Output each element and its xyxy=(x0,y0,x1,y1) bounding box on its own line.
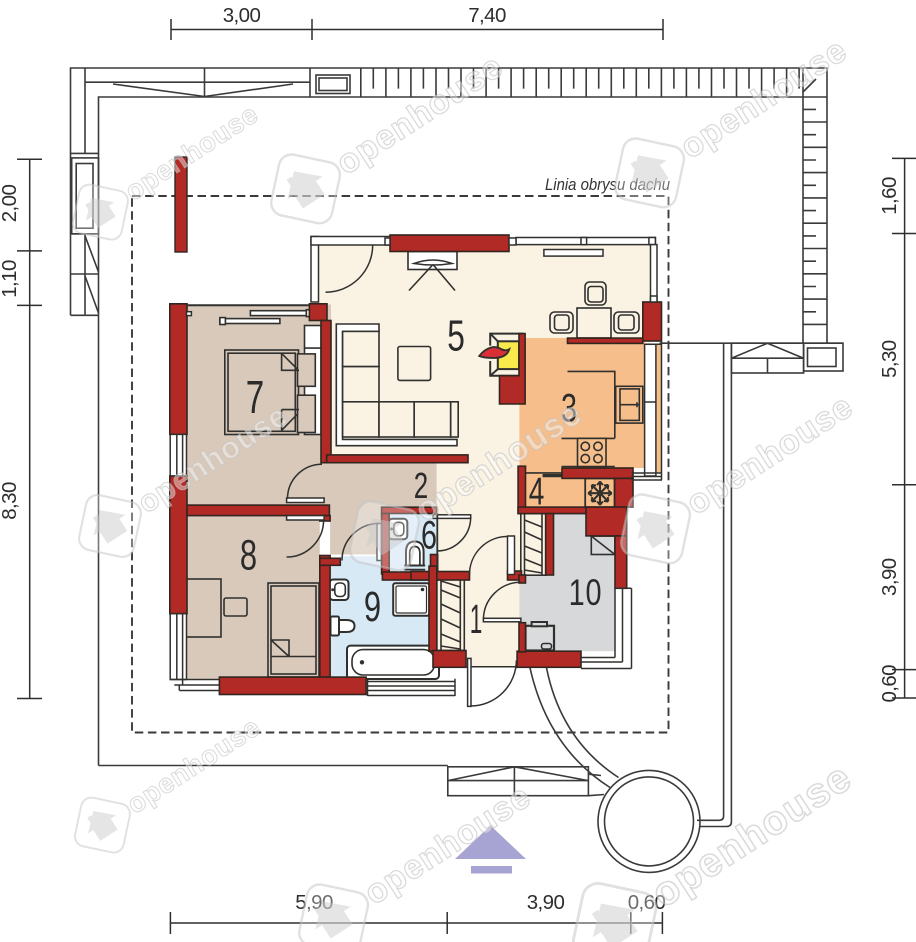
svg-text:8,30: 8,30 xyxy=(0,482,21,520)
svg-text:3,90: 3,90 xyxy=(527,891,565,914)
svg-text:10: 10 xyxy=(569,573,603,614)
svg-text:1: 1 xyxy=(470,597,483,643)
svg-text:8: 8 xyxy=(240,530,257,578)
svg-text:1,10: 1,10 xyxy=(0,260,21,298)
svg-text:5,30: 5,30 xyxy=(878,340,901,378)
svg-text:3,00: 3,00 xyxy=(223,4,261,27)
svg-text:0,60: 0,60 xyxy=(878,665,901,703)
svg-text:9: 9 xyxy=(364,582,381,630)
svg-text:7,40: 7,40 xyxy=(468,4,506,27)
svg-text:1,60: 1,60 xyxy=(878,177,901,215)
svg-text:5: 5 xyxy=(447,311,465,360)
svg-text:2,00: 2,00 xyxy=(0,185,21,223)
svg-text:4: 4 xyxy=(529,470,545,514)
svg-text:3,90: 3,90 xyxy=(878,558,901,596)
